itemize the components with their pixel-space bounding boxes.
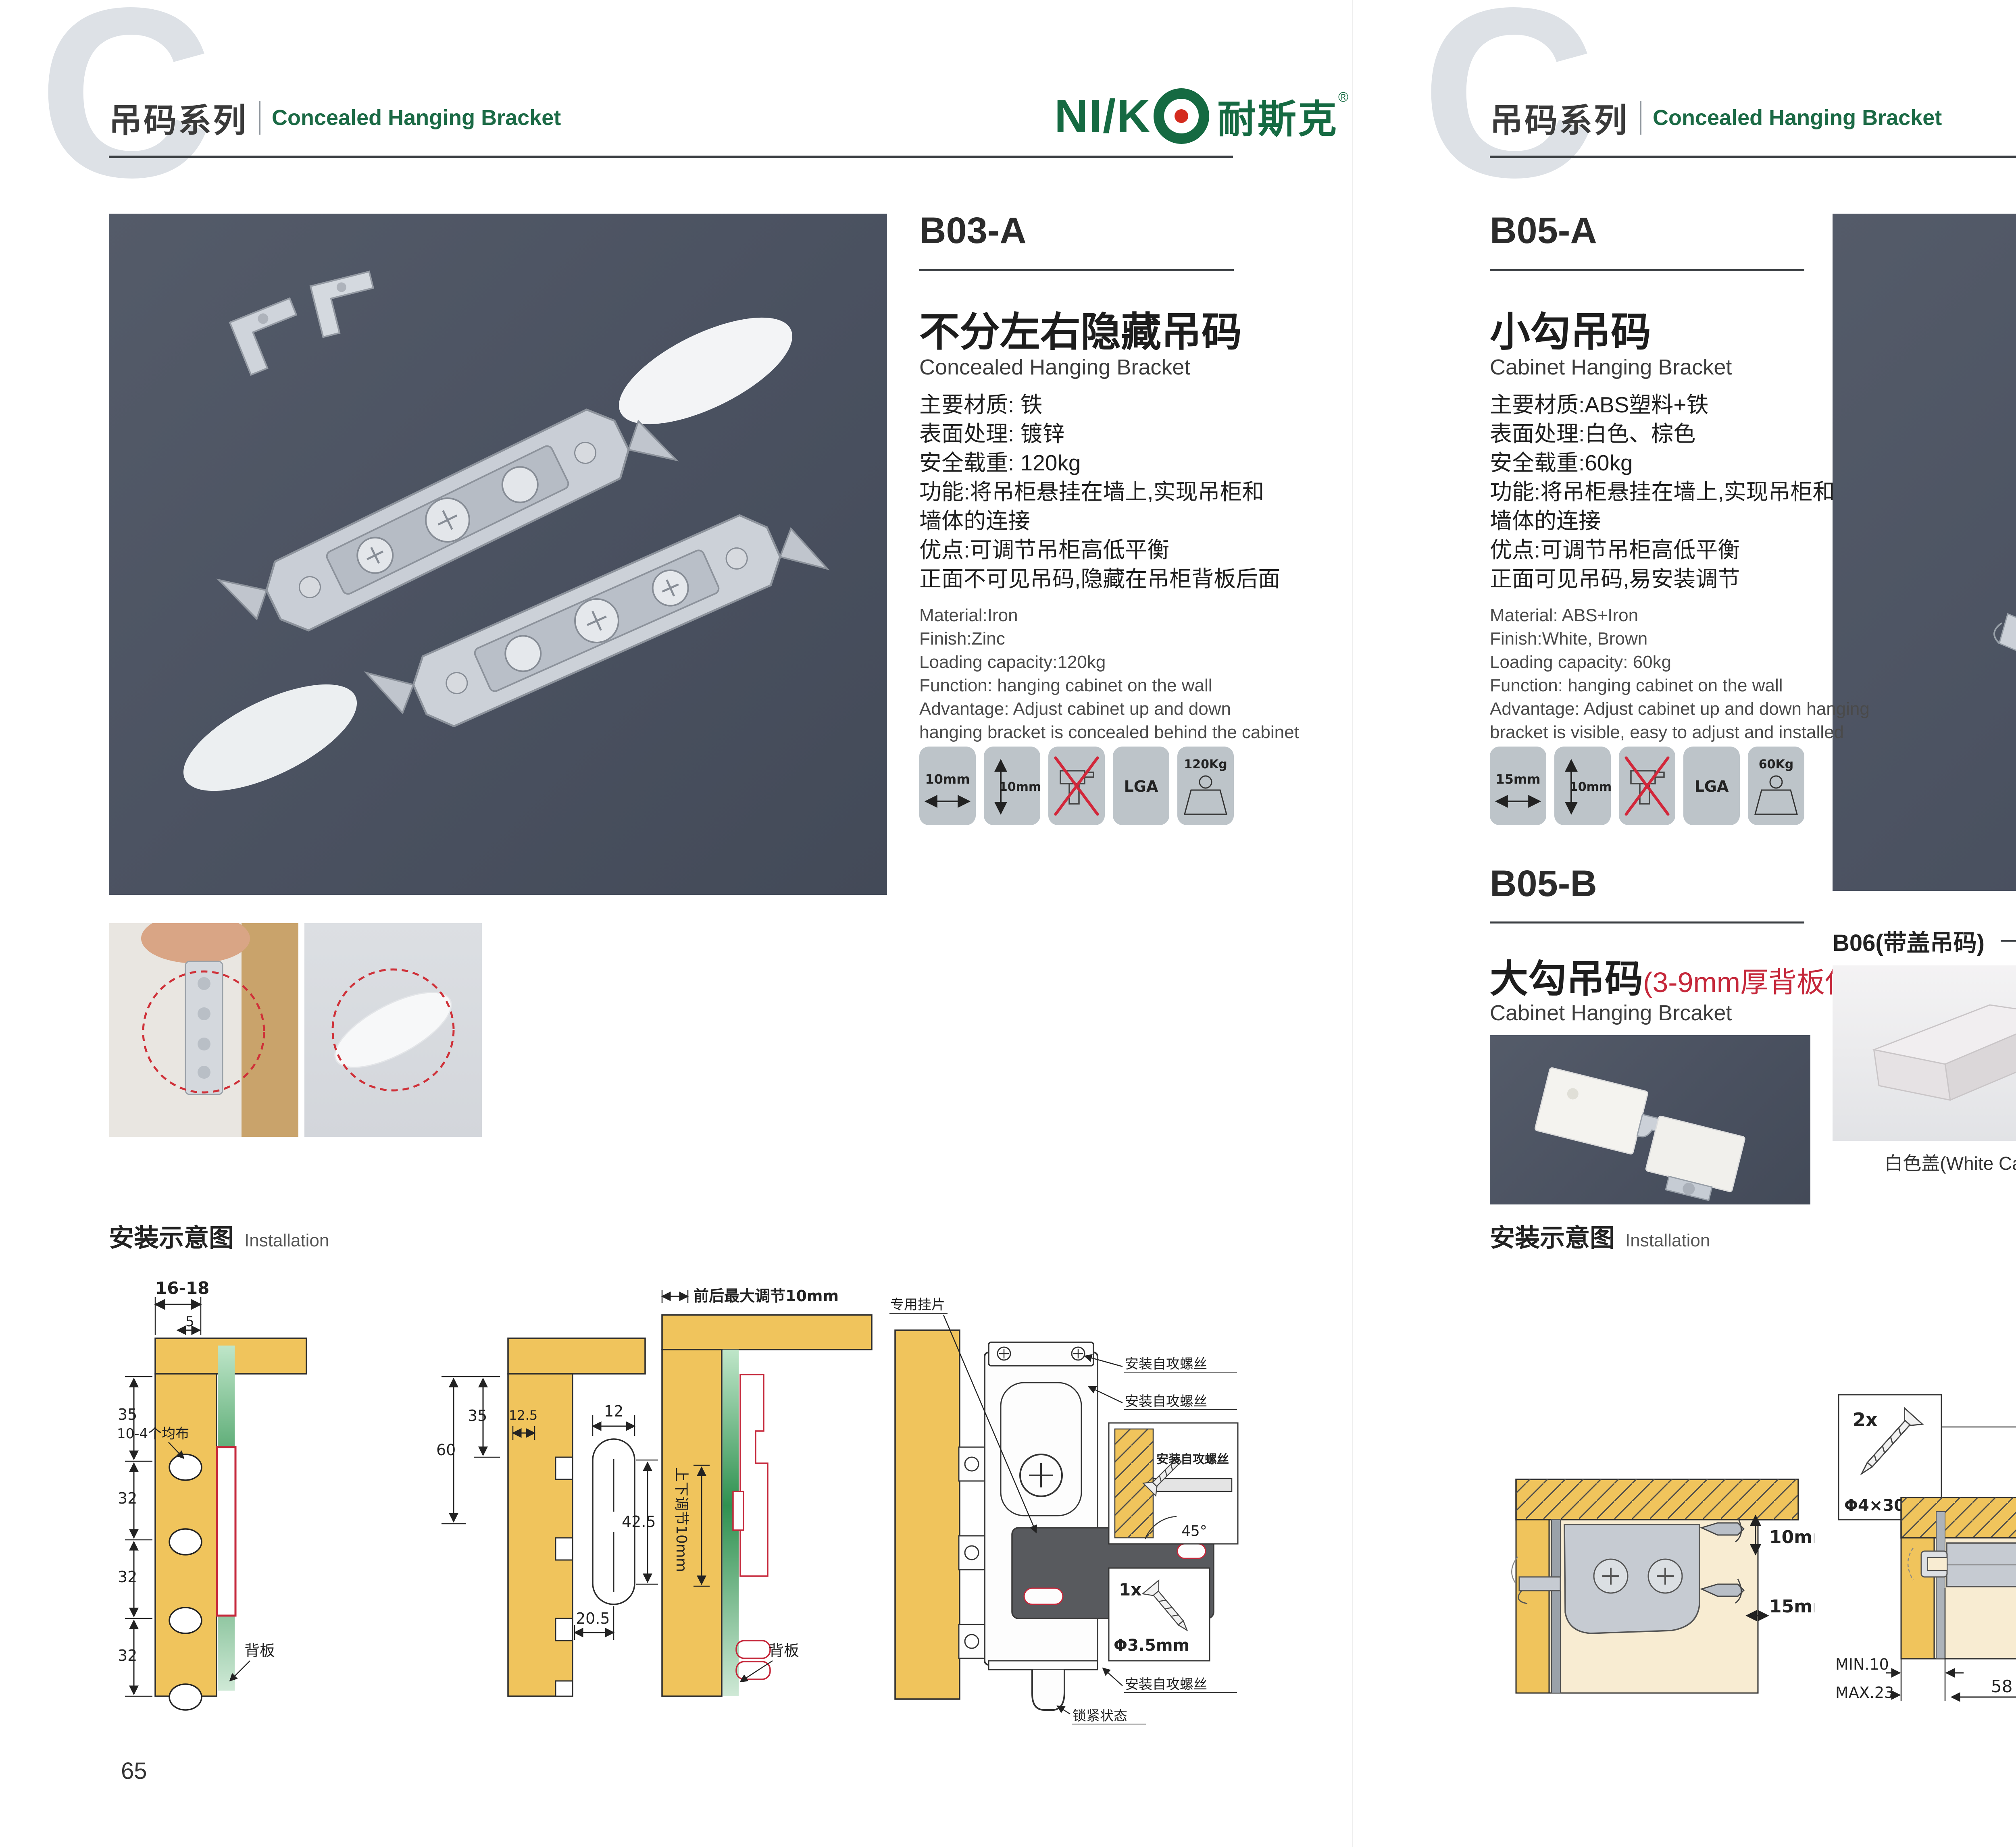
screw-label-2: 安装自攻螺丝 — [1125, 1394, 1207, 1410]
front-back-adjust-label: 前后最大调节10mm — [694, 1287, 839, 1305]
cover-pad-illustration — [304, 923, 482, 1137]
installation-diagram-3: 前后最大调节10mm 上下调节10mm 背板 — [653, 1278, 879, 1729]
dim-min10: MIN.10 — [1835, 1656, 1889, 1673]
detail-photo-cover-pad — [304, 923, 482, 1137]
b05a-photo-illustration — [1833, 214, 2016, 891]
special-plate-label: 专用挂片 — [890, 1297, 945, 1313]
icon-height-10mm: 10mm — [1554, 747, 1611, 825]
series-title-en: Concealed Hanging Bracket — [272, 105, 561, 130]
back-panel — [1552, 1520, 1560, 1693]
header-rule — [1490, 156, 2016, 158]
installation-title-en: Installation — [1625, 1231, 1710, 1251]
logo-cn: 耐斯克 — [1217, 88, 1338, 144]
dim-32: 32 — [118, 1647, 137, 1664]
spec-line: 墙体的连接 — [919, 506, 1280, 535]
product-name-cn: 不分左右隐藏吊码 — [919, 299, 1242, 358]
back-panel — [1936, 1512, 1945, 1659]
screw-qty: 1x — [1119, 1580, 1141, 1599]
spec-cn-block: 主要材质: 铁 表面处理: 镀锌 安全载重: 120kg 功能:将吊柜悬挂在墙上… — [919, 390, 1280, 593]
weight-body-icon — [1755, 790, 1797, 814]
dim-42-5: 42.5 — [622, 1513, 656, 1531]
spec-line: 正面不可见吊码,隐藏在吊柜背板后面 — [919, 564, 1280, 593]
white-pad-top — [604, 296, 807, 445]
product-name-cn: 大勾吊码 — [1490, 948, 1643, 1003]
page-fold-divider — [1352, 0, 1353, 1847]
plastic-block-front — [1979, 553, 2016, 749]
series-divider — [259, 101, 260, 135]
spec-line: 安全载重:60kg — [1490, 448, 1835, 477]
installation-header: 安装示意图 Installation — [109, 1217, 329, 1254]
screw-diameter: Φ3.5mm — [1114, 1636, 1189, 1655]
dim-15mm: 15mm — [1769, 1596, 1814, 1617]
icon-lga: LGA — [1113, 747, 1169, 825]
icon-no-drill — [1048, 747, 1105, 825]
product-photo-b05b — [1490, 1035, 1810, 1204]
icon-height-10mm: 10mm — [984, 747, 1040, 825]
b06-section: B06(带盖吊码) — [1833, 924, 2016, 958]
product-name-cn: 小勾吊码 — [1490, 299, 1651, 358]
logo-latin: NI/K — [1054, 89, 1151, 143]
page-number-left: 65 — [121, 1758, 147, 1785]
spec-line: Loading capacity:120kg — [919, 651, 1299, 674]
icon-label: 10mm — [1570, 780, 1611, 794]
lock-hook — [1032, 1670, 1064, 1710]
dim-35: 35 — [118, 1406, 137, 1423]
hook — [1519, 1577, 1560, 1591]
installation-diagram-r2: 2x Φ4×30mm 18 MIN.10 MAX.23 58 — [1831, 1379, 2016, 1733]
back-panel-label: 背板 — [768, 1642, 799, 1660]
icon-label: LGA — [1124, 778, 1158, 795]
spec-line: 优点:可调节吊柜高低平衡 — [919, 535, 1280, 564]
holes-callout: 10-4个均布 — [117, 1426, 189, 1442]
screw-label-1: 安装自攻螺丝 — [1125, 1356, 1207, 1372]
b05b-photo-illustration — [1490, 1035, 1810, 1204]
spec-line: 正面可见吊码,易安装调节 — [1490, 564, 1835, 593]
screw-inset: 安装自攻螺丝 45° — [1109, 1423, 1238, 1544]
product-name-en: Concealed Hanging Bracket — [919, 355, 1190, 380]
installation-diagram-1: 16-18 5 35 32 32 32 10-4个均布 背板 — [117, 1278, 310, 1729]
b03a-photo-illustration — [109, 214, 887, 895]
installation-diagram-4: 安装自攻螺丝 安装自攻螺丝 专用挂片 安装自攻螺丝 45° 1x Φ3.5mm … — [883, 1286, 1242, 1729]
spec-line: 表面处理:白色、棕色 — [1490, 419, 1835, 448]
dim-10mm: 10mm — [1769, 1527, 1814, 1547]
icon-label: LGA — [1695, 778, 1729, 795]
b06-label: B06(带盖吊码) — [1833, 924, 1985, 958]
icon-load-60kg: 60Kg — [1748, 747, 1804, 825]
inset-screw-label: 安装自攻螺丝 — [1156, 1452, 1229, 1466]
series-title-en: Concealed Hanging Bracket — [1653, 105, 1942, 130]
dim-16-18: 16-18 — [155, 1278, 209, 1298]
series-divider — [1640, 101, 1641, 135]
cap-photo-white — [1833, 965, 2016, 1141]
spec-line: Advantage: Adjust cabinet up and down ha… — [1490, 697, 1870, 721]
spec-line: 墙体的连接 — [1490, 506, 1835, 535]
icon-label: 120Kg — [1184, 757, 1227, 772]
spec-line: 安全载重: 120kg — [919, 448, 1280, 477]
plastic-block-2 — [1642, 1116, 1745, 1204]
spec-line: hanging bracket is concealed behind the … — [919, 721, 1299, 744]
screw-label-3: 安装自攻螺丝 — [1125, 1676, 1207, 1693]
spec-en-block: Material: ABS+Iron Finish:White, Brown L… — [1490, 604, 1870, 744]
brand-logo: NI/K 耐斯克 ® — [1054, 88, 1348, 144]
dim-20-5: 20.5 — [576, 1610, 610, 1627]
red-cross-icon — [1056, 758, 1098, 814]
spec-line: Advantage: Adjust cabinet up and down — [919, 697, 1299, 721]
spec-line: Finish:Zinc — [919, 627, 1299, 651]
spec-line: 主要材质: 铁 — [919, 390, 1280, 419]
icon-load-120kg: 120Kg — [1177, 747, 1234, 825]
logo-o-icon — [1154, 88, 1209, 144]
dim-12: 12 — [604, 1402, 623, 1420]
series-header: 吊码系列 Concealed Hanging Bracket — [1490, 94, 1942, 141]
product-photo-b05a — [1833, 214, 2016, 891]
screw-qty-box: 1x Φ3.5mm — [1109, 1568, 1210, 1661]
spec-line: Function: hanging cabinet on the wall — [919, 674, 1299, 697]
installation-title-en: Installation — [244, 1231, 329, 1251]
angle-45: 45° — [1181, 1523, 1207, 1539]
spec-line: Material:Iron — [919, 604, 1299, 627]
code-underline — [1490, 269, 1804, 271]
product-code-b05a: B05-A — [1490, 210, 1597, 252]
spec-cn-block: 主要材质:ABS塑料+铁 表面处理:白色、棕色 安全载重:60kg 功能:将吊柜… — [1490, 390, 1835, 593]
weight-hook-icon — [1200, 776, 1212, 788]
weight-hook-icon — [1770, 776, 1782, 788]
dim-35: 35 — [468, 1407, 487, 1425]
logo-registered-mark: ® — [1338, 89, 1348, 105]
installation-diagram-2: 35 60 12.5 12 42.5 20.5 — [435, 1278, 661, 1729]
product-name-row-b05b: 大勾吊码 (3-9mm厚背板使用) — [1490, 948, 1891, 1003]
dim-60: 60 — [436, 1441, 456, 1459]
installed-bracket-illustration — [109, 923, 298, 1137]
product-photo-b03a — [109, 214, 887, 895]
installation-header: 安装示意图 Installation — [1490, 1217, 1710, 1254]
detail-photo-installed-bracket — [109, 923, 298, 1137]
icon-label: 10mm — [999, 780, 1040, 794]
lock-state-label: 锁紧状态 — [1073, 1708, 1127, 1724]
icon-label: 60Kg — [1759, 757, 1793, 772]
bracket-slot-red — [217, 1447, 235, 1616]
spec-line: 主要材质:ABS塑料+铁 — [1490, 390, 1835, 419]
back-panel-label: 背板 — [244, 1642, 275, 1660]
icon-no-drill — [1619, 747, 1675, 825]
screw-qty: 2x — [1853, 1409, 1878, 1431]
angle-bracket-small-1 — [230, 298, 311, 375]
code-underline — [919, 269, 1234, 271]
icon-width-10mm: 10mm — [919, 747, 976, 825]
series-header: 吊码系列 Concealed Hanging Bracket — [109, 94, 561, 141]
series-title-cn: 吊码系列 — [109, 94, 248, 141]
spec-line: Function: hanging cabinet on the wall — [1490, 674, 1870, 697]
white-pad-bottom — [169, 663, 371, 812]
spec-line: 优点:可调节吊柜高低平衡 — [1490, 535, 1835, 564]
product-name-en: Cabinet Hanging Bracket — [1490, 355, 1732, 380]
header-rule — [109, 156, 1233, 158]
metal-hook — [1997, 614, 2016, 667]
code-underline — [1490, 921, 1804, 923]
dim-5: 5 — [185, 1314, 194, 1330]
up-down-adjust-label: 上下调节10mm — [673, 1467, 689, 1572]
red-cross-icon — [1626, 758, 1668, 814]
product-code-b05b: B05-B — [1490, 863, 1597, 905]
dim-max23: MAX.23 — [1835, 1684, 1894, 1701]
b06-rule — [2001, 940, 2016, 942]
dim-32: 32 — [118, 1568, 137, 1586]
cap-caption-white: 白色盖(White Cap) — [1833, 1149, 2016, 1175]
dim-32: 32 — [118, 1489, 137, 1507]
installation-title-cn: 安装示意图 — [1490, 1217, 1615, 1254]
weight-body-icon — [1185, 790, 1227, 814]
hand — [141, 923, 250, 963]
product-code-b03a: B03-A — [919, 210, 1027, 252]
installation-diagram-r1: 10mm 15mm — [1508, 1395, 1814, 1733]
catalog-spread: C 吊码系列 Concealed Hanging Bracket NI/K 耐斯… — [0, 0, 2016, 1847]
icon-label: 15mm — [1495, 772, 1540, 787]
spec-line: 功能:将吊柜悬挂在墙上,实现吊柜和 — [919, 477, 1280, 506]
spec-en-block: Material:Iron Finish:Zinc Loading capaci… — [919, 604, 1299, 744]
angle-bracket-small-2 — [310, 272, 382, 337]
series-title-cn: 吊码系列 — [1490, 94, 1629, 141]
spec-line: Finish:White, Brown — [1490, 627, 1870, 651]
product-name-en: Cabinet Hanging Brcaket — [1490, 1000, 1732, 1025]
icon-label: 10mm — [925, 772, 970, 787]
spec-line: Material: ABS+Iron — [1490, 604, 1870, 627]
dim-12-5: 12.5 — [509, 1408, 537, 1423]
spec-line: 表面处理: 镀锌 — [919, 419, 1280, 448]
icon-width-15mm: 15mm — [1490, 747, 1546, 825]
spec-line: 功能:将吊柜悬挂在墙上,实现吊柜和 — [1490, 477, 1835, 506]
icon-lga: LGA — [1683, 747, 1740, 825]
dim-58: 58 — [1991, 1676, 2012, 1696]
spec-line: Loading capacity: 60kg — [1490, 651, 1870, 674]
spec-line: bracket is visible, easy to adjust and i… — [1490, 721, 1870, 744]
installation-title-cn: 安装示意图 — [109, 1217, 234, 1254]
